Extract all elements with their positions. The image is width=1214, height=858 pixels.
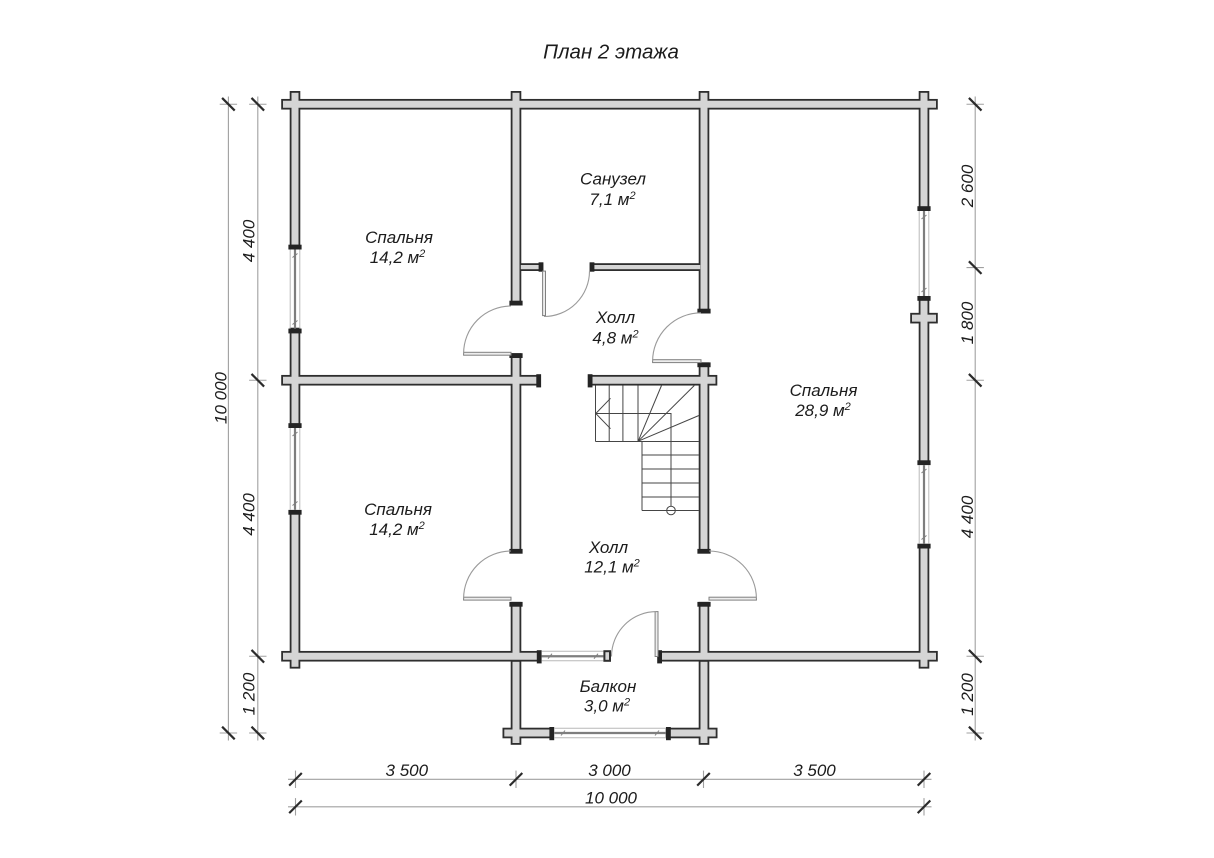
svg-text:12,1 м2: 12,1 м2 [584, 558, 640, 577]
svg-text:4,8 м2: 4,8 м2 [592, 329, 638, 348]
svg-text:2 600: 2 600 [958, 164, 977, 208]
svg-text:1 800: 1 800 [958, 301, 977, 344]
svg-text:4 400: 4 400 [240, 493, 259, 536]
svg-text:1 200: 1 200 [240, 672, 259, 715]
svg-text:Спальня: Спальня [790, 381, 858, 400]
svg-text:14,2 м2: 14,2 м2 [369, 520, 425, 539]
svg-text:7,1 м2: 7,1 м2 [589, 190, 635, 209]
svg-text:Спальня: Спальня [364, 500, 432, 519]
svg-text:Холл: Холл [588, 538, 629, 557]
svg-text:Санузел: Санузел [580, 170, 646, 189]
svg-text:1 200: 1 200 [958, 673, 977, 716]
svg-text:10 000: 10 000 [585, 788, 638, 807]
svg-text:План 2 этажа: План 2 этажа [543, 41, 679, 64]
svg-text:28,9 м2: 28,9 м2 [794, 401, 851, 420]
svg-text:3 500: 3 500 [386, 761, 429, 780]
svg-text:4 400: 4 400 [958, 495, 977, 538]
svg-text:3 000: 3 000 [588, 761, 631, 780]
svg-text:Спальня: Спальня [365, 228, 433, 247]
svg-text:4 400: 4 400 [240, 219, 259, 262]
svg-text:14,2 м2: 14,2 м2 [370, 248, 426, 267]
svg-text:Холл: Холл [595, 308, 636, 327]
svg-text:10 000: 10 000 [212, 371, 231, 424]
svg-text:3,0 м2: 3,0 м2 [584, 697, 630, 716]
svg-text:3 500: 3 500 [793, 761, 836, 780]
svg-text:Балкон: Балкон [580, 677, 637, 696]
